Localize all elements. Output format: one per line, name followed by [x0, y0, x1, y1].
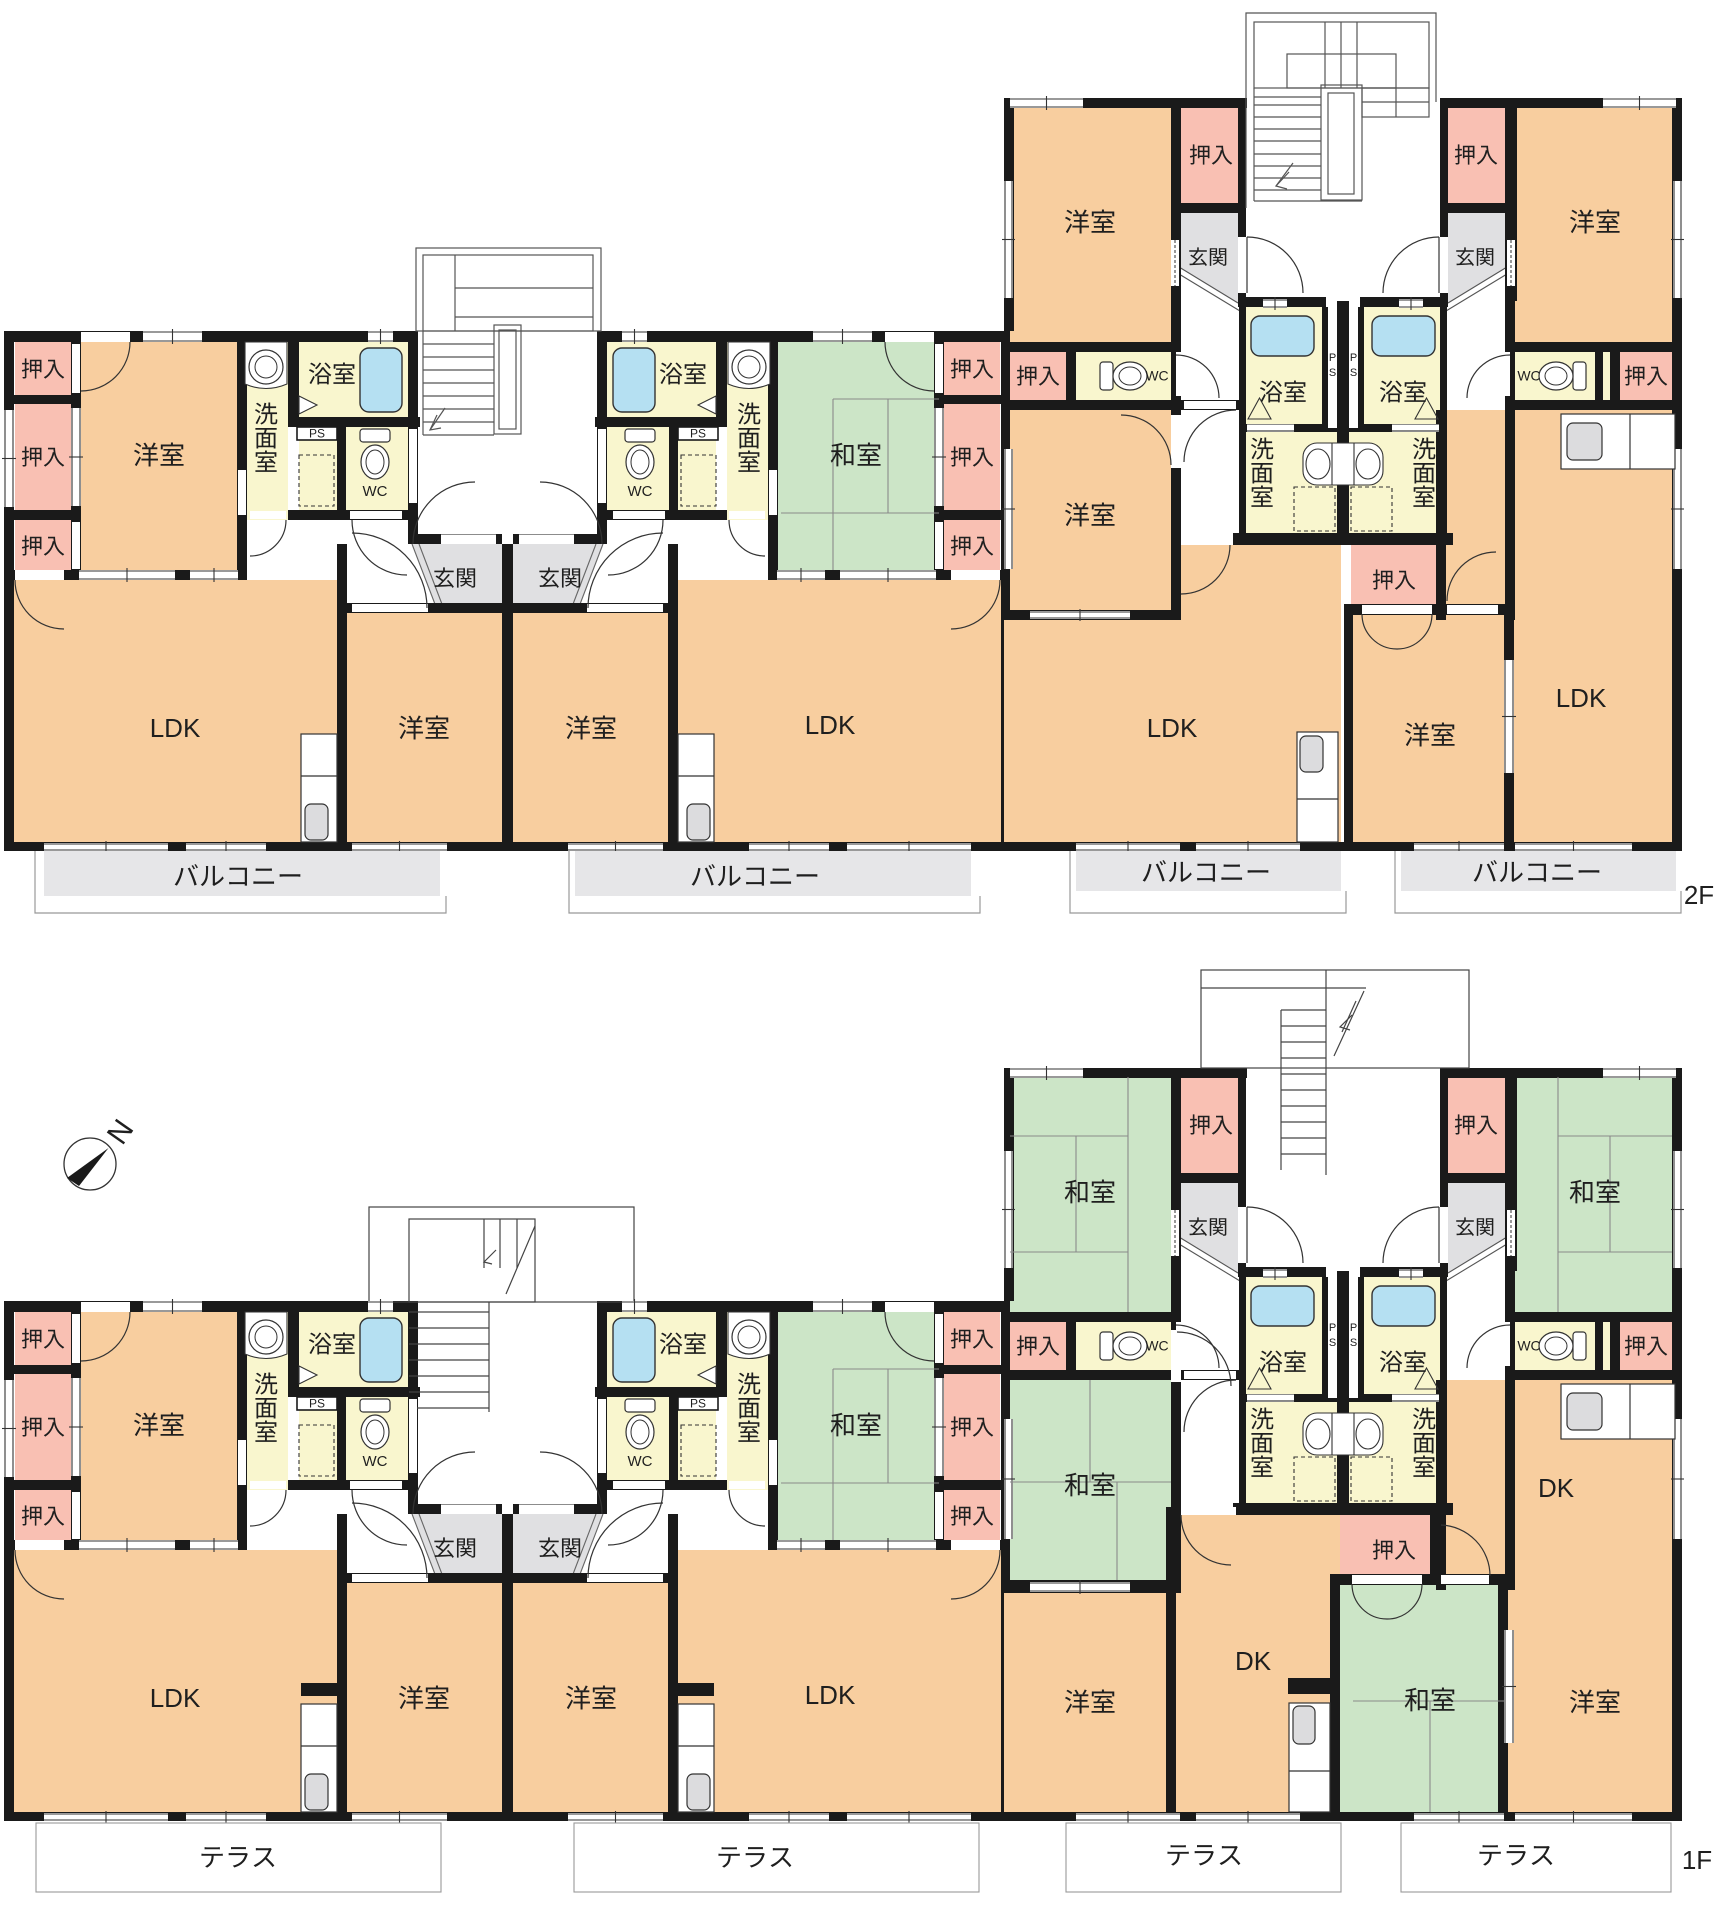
svg-text:WC: WC [363, 483, 388, 500]
svg-text:P: P [1350, 352, 1357, 364]
svg-text:LDK: LDK [1147, 713, 1198, 743]
svg-text:S: S [1350, 367, 1357, 379]
svg-text:1F: 1F [1682, 1845, 1712, 1875]
svg-text:WC: WC [628, 483, 653, 500]
svg-text:DK: DK [1235, 1646, 1272, 1676]
svg-text:WC: WC [363, 1453, 388, 1470]
svg-text:S: S [1329, 1337, 1336, 1349]
svg-text:WC: WC [1145, 368, 1168, 384]
svg-text:S: S [1329, 367, 1336, 379]
svg-text:LDK: LDK [805, 710, 856, 740]
svg-text:WC: WC [1517, 368, 1540, 384]
svg-text:PS: PS [690, 427, 706, 441]
svg-text:P: P [1350, 1322, 1357, 1334]
svg-text:S: S [1350, 1337, 1357, 1349]
svg-text:PS: PS [309, 427, 325, 441]
svg-text:WC: WC [1517, 1338, 1540, 1354]
svg-text:PS: PS [309, 1397, 325, 1411]
svg-text:LDK: LDK [805, 1680, 856, 1710]
svg-text:WC: WC [628, 1453, 653, 1470]
svg-text:LDK: LDK [1556, 683, 1607, 713]
svg-text:P: P [1329, 352, 1336, 364]
svg-text:P: P [1329, 1322, 1336, 1334]
svg-text:PS: PS [690, 1397, 706, 1411]
svg-text:LDK: LDK [150, 713, 201, 743]
svg-text:LDK: LDK [150, 1683, 201, 1713]
svg-text:DK: DK [1538, 1473, 1575, 1503]
svg-text:WC: WC [1145, 1338, 1168, 1354]
svg-text:2F: 2F [1684, 880, 1714, 910]
